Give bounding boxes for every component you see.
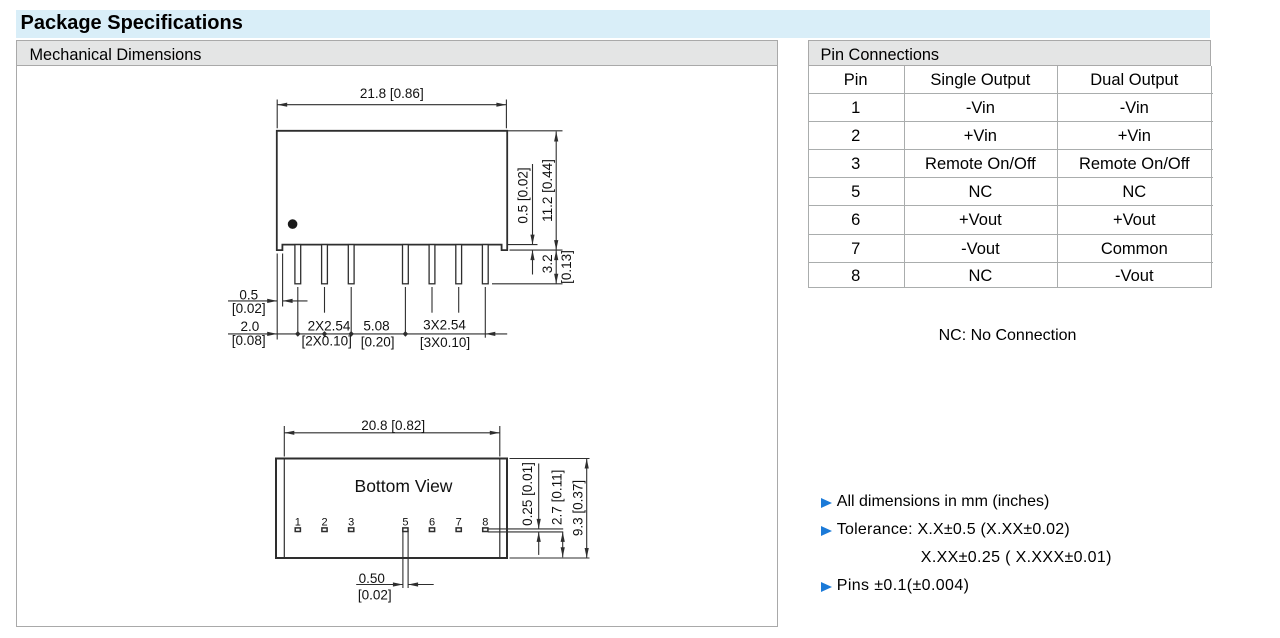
svg-text:[0.08]: [0.08] [232, 333, 266, 348]
svg-text:[0.20]: [0.20] [361, 334, 395, 349]
svg-text:[0.02]: [0.02] [232, 301, 266, 316]
svg-text:[2X0.10]: [2X0.10] [302, 334, 352, 349]
svg-text:2: 2 [321, 516, 327, 528]
svg-text:8: 8 [482, 516, 488, 528]
svg-text:[0.13]: [0.13] [559, 250, 574, 284]
svg-text:11.2 [0.44]: 11.2 [0.44] [540, 159, 555, 222]
svg-text:20.8 [0.82]: 20.8 [0.82] [361, 418, 425, 433]
svg-text:1: 1 [295, 516, 301, 528]
svg-text:Bottom View: Bottom View [355, 476, 453, 496]
svg-text:3: 3 [348, 516, 354, 528]
svg-text:2X2.54: 2X2.54 [308, 318, 351, 333]
svg-text:21.8 [0.86]: 21.8 [0.86] [360, 86, 424, 101]
svg-text:6: 6 [429, 516, 435, 528]
svg-text:0.50: 0.50 [359, 571, 385, 586]
svg-text:0.25 [0.01]: 0.25 [0.01] [520, 462, 535, 526]
svg-text:2.7 [0.11]: 2.7 [0.11] [549, 470, 564, 525]
svg-text:3X2.54: 3X2.54 [423, 317, 466, 332]
svg-text:2.0: 2.0 [241, 319, 260, 334]
svg-text:9.3 [0.37]: 9.3 [0.37] [570, 480, 585, 536]
svg-text:5.08: 5.08 [363, 318, 389, 333]
svg-text:7: 7 [456, 516, 462, 528]
svg-text:3.2: 3.2 [540, 254, 555, 273]
svg-text:[0.02]: [0.02] [358, 587, 392, 602]
svg-text:0.5 [0.02]: 0.5 [0.02] [516, 167, 531, 223]
svg-text:5: 5 [402, 516, 408, 528]
svg-text:[3X0.10]: [3X0.10] [420, 335, 470, 350]
